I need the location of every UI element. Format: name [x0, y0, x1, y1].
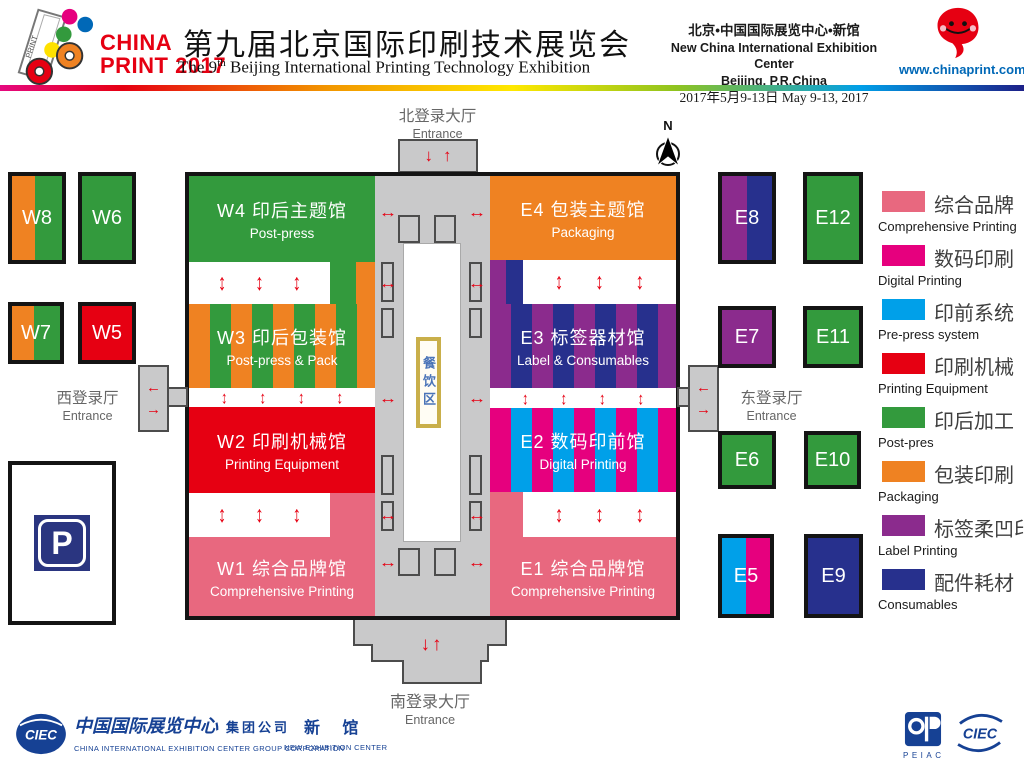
east-entrance-label: 东登录厅 Entrance [724, 386, 819, 423]
hall-w5: W5 [78, 302, 136, 364]
hall-w2-name-cn: W2 印刷机械馆 [217, 428, 347, 454]
hall-w1-name-en: Comprehensive Printing [210, 584, 354, 599]
new-center-cn: 新 馆 [284, 714, 387, 738]
hall-e5: E5 [718, 534, 774, 618]
legend-cn-label: 标签柔凹印 [934, 513, 1024, 542]
hall-w3-edge-stripe [356, 262, 375, 304]
updown-arrows-icon: ↕ [561, 388, 568, 408]
updown-arrows-icon: ↕ [636, 501, 645, 528]
hall-w1-extension [330, 493, 375, 537]
left-arrow-icon: ← [696, 379, 711, 396]
hall-e10-label: E10 [815, 449, 851, 472]
stairs-marker [434, 215, 456, 243]
hall-w2-name-en: Printing Equipment [225, 457, 339, 472]
hall-w3: W3 印后包装馆 Post-press & Pack [189, 304, 375, 388]
parking-sign-letter: P [38, 519, 86, 567]
right-arrow-icon: → [696, 401, 711, 418]
east-entrance-en: Entrance [724, 409, 819, 423]
hall-w8-label: W8 [22, 207, 52, 230]
hall-e3-edge-stripe [506, 260, 523, 304]
legend-cn-prepress: 印前系统 [934, 297, 1014, 326]
peiac-label: PEIAC [903, 751, 943, 760]
venue-cn: 北京•中国国际展览中心•新馆 [660, 22, 888, 40]
title-en-rest: Beijing International Printing Technolog… [226, 58, 590, 77]
west-entrance-connector [166, 387, 188, 407]
updown-arrows-icon: ↕ [636, 269, 645, 296]
legend-swatch-label [882, 515, 925, 536]
hall-e12: E12 [803, 172, 863, 264]
hall-e3-edge-stripe [490, 260, 506, 304]
ciec-group-cn: 中国国际展览中心 [74, 716, 218, 736]
corridor-e2-e1: ↕ ↕ ↕ [523, 492, 676, 537]
updown-arrows-icon: ↕ [293, 502, 302, 529]
legend-en-consumables: Consumables [878, 597, 958, 612]
hall-e7: E7 [718, 306, 776, 368]
hall-e6: E6 [718, 431, 776, 489]
updown-arrows-icon: ↕ [522, 388, 529, 408]
chinaprint-floorplan-page: PRINT CHINA PRINT 2017 第九届北京国际印刷技术展览会 Th… [0, 0, 1024, 768]
hall-e11: E11 [803, 306, 863, 368]
east-entrance: ← → [688, 365, 719, 432]
corridor-w4-w3: ↕ ↕ ↕ [189, 262, 330, 304]
legend-cn-digital: 数码印刷 [934, 243, 1014, 272]
updown-arrows-icon: ↕ [298, 387, 305, 407]
hall-e2: E2 数码印前馆 Digital Printing [490, 408, 676, 492]
hall-e1-name-en: Comprehensive Printing [511, 584, 655, 599]
updown-arrows-icon: ↕ [218, 502, 227, 529]
hall-e9: E9 [804, 534, 863, 618]
title-en-sup: th [217, 57, 226, 69]
hall-w5-label: W5 [92, 322, 122, 345]
title-en-pre: The 9 [178, 58, 217, 77]
ciec-logo-icon: CIEC [14, 712, 68, 761]
legend-en-comprehensive: Comprehensive Printing [878, 219, 1017, 234]
legend-en-label: Label Printing [878, 543, 958, 558]
south-entrance-cn: 南登录大厅 [355, 688, 505, 712]
hall-w7-label: W7 [21, 322, 51, 345]
stairs-marker [381, 308, 394, 338]
legend-cn-consumables: 配件耗材 [934, 567, 1014, 596]
peiac-logo-icon [904, 711, 942, 749]
hall-w4-name-en: Post-press [250, 226, 315, 241]
updown-arrows-icon: ↕ [221, 387, 228, 407]
up-arrow-icon: ↑ [443, 146, 452, 166]
hall-w6: W6 [78, 172, 136, 264]
down-arrow-icon: ↓ [425, 146, 434, 166]
svg-text:CIEC: CIEC [25, 728, 57, 743]
hall-w4: W4 印后主题馆 Post-press [189, 176, 375, 262]
hall-w7: W7 [8, 302, 64, 364]
hall-e10: E10 [804, 431, 861, 489]
website-link[interactable]: www.chinaprint.com.cn [899, 62, 1024, 77]
south-entrance-step3 [402, 660, 482, 684]
legend-en-digital: Digital Printing [878, 273, 962, 288]
dining-area: 餐饮区 [416, 337, 441, 428]
hall-e9-label: E9 [821, 565, 845, 588]
updown-arrows-icon: ↕ [595, 269, 604, 296]
hall-w3-name-cn: W3 印后包装馆 [217, 324, 347, 350]
legend-cn-comprehensive: 综合品牌 [934, 189, 1014, 218]
updown-arrows-icon: ↕ [638, 388, 645, 408]
stairs-marker [434, 548, 456, 576]
north-entrance-cn: 北登录大厅 [365, 104, 510, 126]
hall-w2: W2 印刷机械馆 Printing Equipment [189, 407, 375, 493]
east-entrance-cn: 东登录厅 [724, 386, 819, 408]
west-entrance-en: Entrance [40, 409, 135, 423]
corridor-w2-w1: ↕ ↕ ↕ [189, 493, 330, 537]
hall-e6-label: E6 [735, 449, 759, 472]
hall-e3-name-cn: E3 标签器材馆 [520, 324, 645, 350]
dining-area-label: 餐饮区 [419, 356, 438, 410]
venue-en: New China International Exhibition Cente… [660, 40, 888, 73]
north-arrow-icon [650, 133, 686, 169]
left-arrow-icon: ← [146, 379, 161, 396]
hall-w4-name-cn: W4 印后主题馆 [217, 197, 347, 223]
west-entrance: ← → [138, 365, 169, 432]
west-entrance-label: 西登录厅 Entrance [40, 386, 135, 423]
parking-sign-icon: P [34, 515, 90, 571]
legend-swatch-postpress [882, 407, 925, 428]
updown-arrows-icon: ↕ [555, 269, 564, 296]
stairs-marker [469, 308, 482, 338]
north-entrance-label: 北登录大厅 Entrance [365, 104, 510, 141]
hall-w1-name-cn: W1 综合品牌馆 [217, 555, 347, 581]
updown-arrows-icon: ↕ [255, 270, 264, 297]
hall-e4-name-en: Packaging [551, 225, 614, 240]
main-exhibition-building: 餐饮区 ↔ ↔ ↔ ↔ ↔ ↔ ↔ ↔ ↔ ↔ [185, 172, 680, 620]
right-arrow-icon: → [146, 401, 161, 418]
updown-arrows-icon: ↕ [293, 270, 302, 297]
hall-e4: E4 包装主题馆 Packaging [490, 176, 676, 260]
peiac-logo: PEIAC [903, 711, 943, 760]
updown-arrows-icon: ↕ [595, 501, 604, 528]
hall-e2-name-en: Digital Printing [539, 457, 626, 472]
corridor-w3-w2: ↕ ↕ ↕ ↕ [189, 388, 375, 407]
hall-w4-extension [330, 262, 356, 304]
legend-cn-equipment: 印刷机械 [934, 351, 1014, 380]
hall-e8: E8 [718, 172, 776, 264]
west-entrance-cn: 西登录厅 [40, 386, 135, 408]
stairs-marker [381, 455, 394, 495]
hall-e11-label: E11 [816, 326, 850, 349]
hall-e3: E3 标签器材馆 Label & Consumables [490, 304, 676, 388]
hall-w6-label: W6 [92, 207, 122, 230]
svg-text:CIEC: CIEC [963, 727, 998, 743]
updown-arrows-icon: ↕ [337, 387, 344, 407]
corridor-e3-e2: ↕ ↕ ↕ ↕ [490, 388, 676, 408]
central-corridor: 餐饮区 ↔ ↔ ↔ ↔ ↔ ↔ ↔ ↔ ↔ ↔ [375, 176, 490, 616]
new-center-block: 新 馆 NEW EXHIBITION CENTER [284, 714, 387, 752]
hall-e1-name-cn: E1 综合品牌馆 [520, 555, 645, 581]
corridor-e4-e3: ↕ ↕ ↕ [523, 260, 676, 304]
hall-e12-label: E12 [815, 207, 851, 230]
legend-en-packaging: Packaging [878, 489, 939, 504]
hall-e1: E1 综合品牌馆 Comprehensive Printing [490, 537, 676, 616]
updown-arrows-icon: ↕ [218, 270, 227, 297]
legend-swatch-packaging [882, 461, 925, 482]
ciec-logo-right-icon: CIEC [950, 712, 1010, 759]
hall-w1: W1 综合品牌馆 Comprehensive Printing [189, 537, 375, 616]
hall-e3-name-en: Label & Consumables [517, 353, 649, 368]
legend-swatch-comprehensive [882, 191, 925, 212]
venue-block: 北京•中国国际展览中心•新馆 New China International E… [660, 22, 888, 107]
legend-swatch-equipment [882, 353, 925, 374]
legend-swatch-prepress [882, 299, 925, 320]
page-title-en: The 9th Beijing International Printing T… [178, 57, 590, 78]
hall-e1-extension [490, 492, 523, 537]
mascot-icon [930, 6, 986, 65]
compass: N [648, 118, 688, 169]
legend-swatch-digital [882, 245, 925, 266]
new-center-en: NEW EXHIBITION CENTER [284, 743, 387, 752]
updown-arrows-icon: ↕ [255, 502, 264, 529]
chinaprint-logo-icon: PRINT [8, 4, 100, 91]
updown-arrows-icon: ↕ [260, 387, 267, 407]
ciec-group-suffix: 集团公司 [226, 720, 290, 735]
hall-w3-name-en: Post-press & Pack [226, 353, 337, 368]
event-dates: 2017年5月9-13日 May 9-13, 2017 [660, 89, 888, 107]
compass-n-label: N [648, 118, 688, 133]
legend-en-prepress: Pre-press system [878, 327, 979, 342]
updown-arrows-icon: ↕ [599, 388, 606, 408]
updown-arrows-icon: ↕ [555, 501, 564, 528]
hall-e8-label: E8 [735, 207, 759, 230]
hall-e5-label: E5 [734, 565, 758, 588]
north-entrance: ↓ ↑ [398, 139, 478, 173]
hall-w8: W8 [8, 172, 66, 264]
stairs-marker [469, 455, 482, 495]
hall-e2-name-cn: E2 数码印前馆 [520, 428, 645, 454]
legend-cn-postpress: 印后加工 [934, 405, 1014, 434]
rainbow-divider [0, 85, 1024, 91]
hall-e4-name-cn: E4 包装主题馆 [520, 196, 645, 222]
down-up-arrows-icon: ↓↑ [402, 634, 462, 656]
legend-swatch-consumables [882, 569, 925, 590]
hall-e7-label: E7 [735, 326, 759, 349]
legend-en-equipment: Printing Equipment [878, 381, 988, 396]
legend-cn-packaging: 包装印刷 [934, 459, 1014, 488]
parking-area: P [8, 461, 116, 625]
legend-en-postpress: Post-pres [878, 435, 934, 450]
